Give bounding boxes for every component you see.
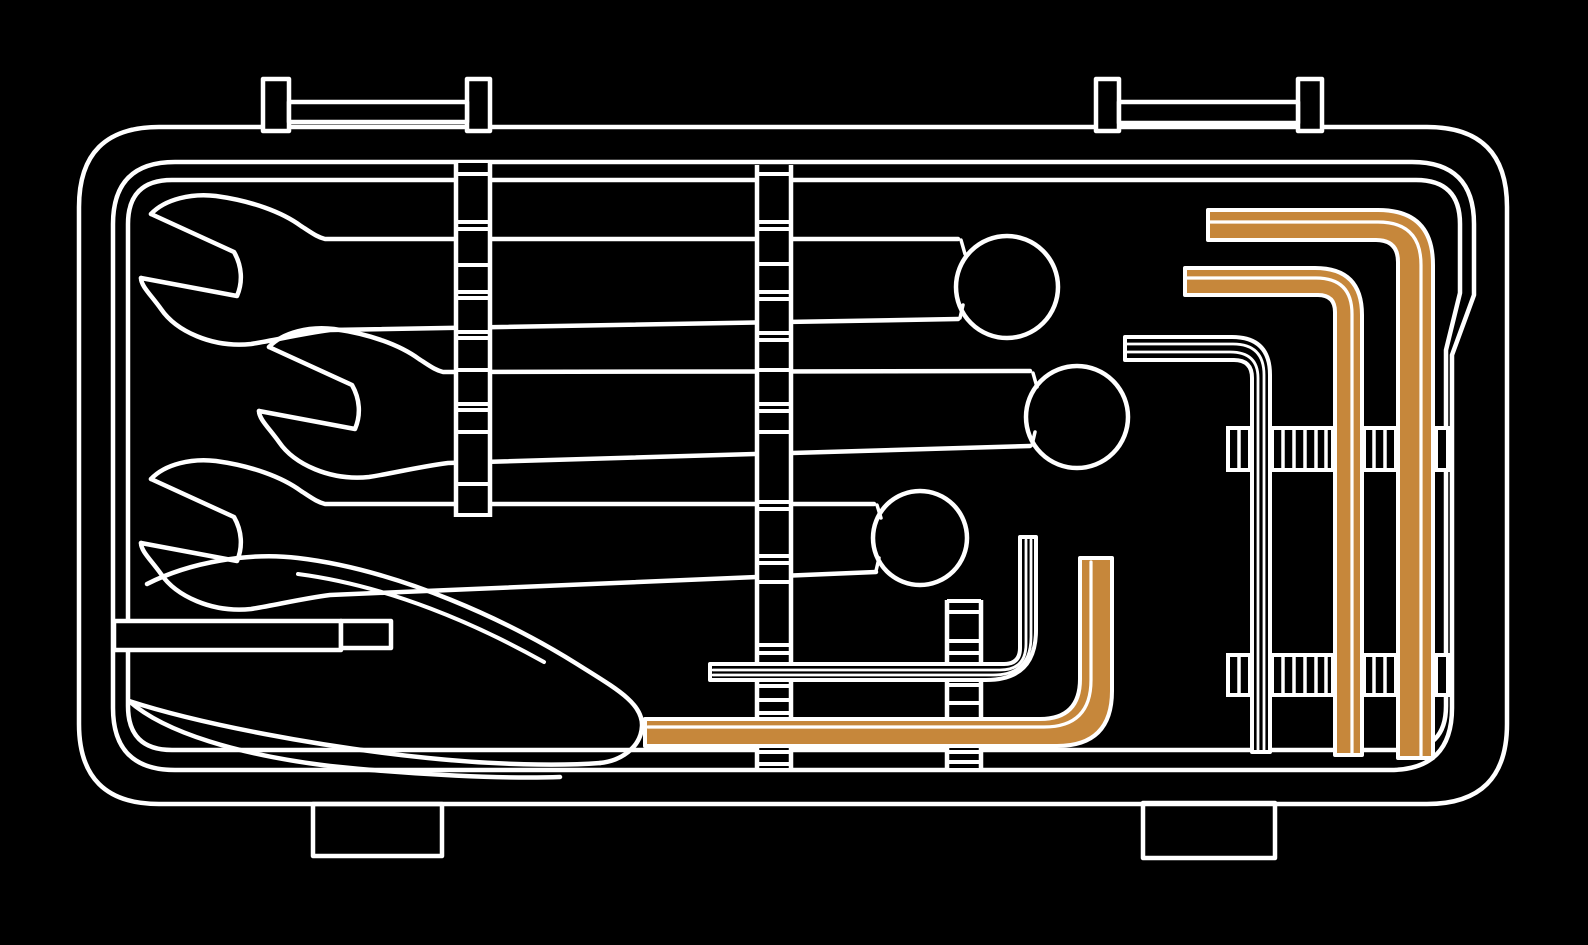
latch-left-crossbar bbox=[289, 102, 467, 122]
clip-band-lower-box-1 bbox=[1272, 655, 1333, 695]
tool-case-canvas bbox=[0, 0, 1588, 945]
latch-right-post-a bbox=[1096, 79, 1119, 131]
clip-band-lower-box-3 bbox=[1436, 655, 1448, 695]
clip-band-upper-box-2 bbox=[1364, 428, 1396, 470]
tray-rib-bar-end bbox=[341, 621, 391, 648]
latch-right-crossbar bbox=[1119, 102, 1298, 123]
tool-case-illustration bbox=[0, 0, 1588, 945]
latch-right-post-b bbox=[1298, 79, 1322, 131]
retaining-strip-left bbox=[454, 163, 492, 517]
clip-band-upper-box-1 bbox=[1272, 428, 1333, 470]
clip-band-lower-box-2 bbox=[1364, 655, 1396, 695]
latch-left-post-b bbox=[467, 79, 490, 131]
latch-left-post-a bbox=[263, 79, 289, 131]
tray-rib-bar bbox=[114, 621, 341, 650]
clip-band-upper-box-3 bbox=[1436, 428, 1448, 470]
